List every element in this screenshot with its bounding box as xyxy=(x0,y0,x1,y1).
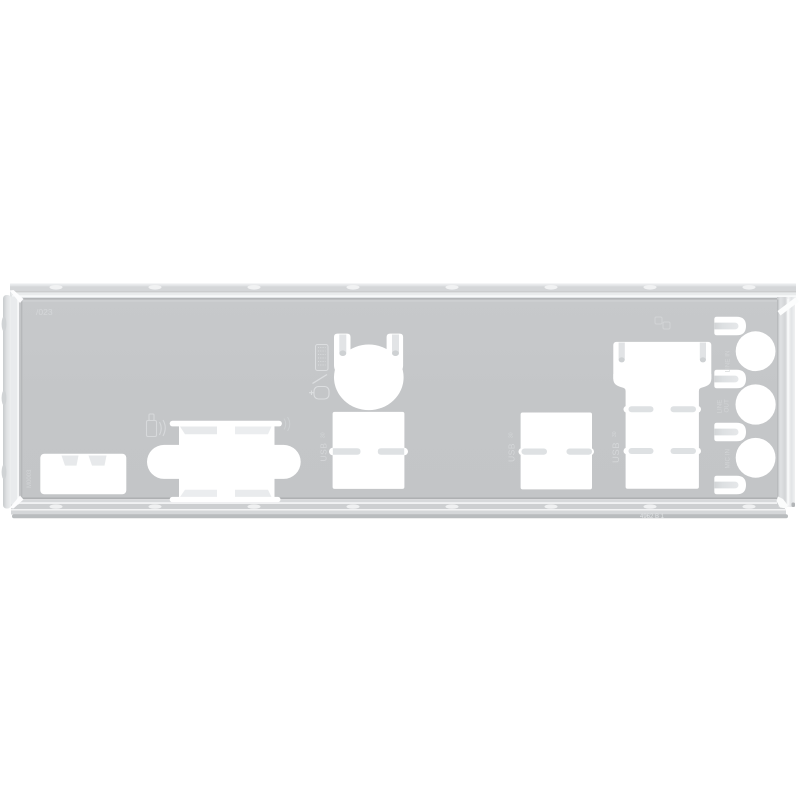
svg-text:M0003: M0003 xyxy=(27,469,33,488)
svg-text:4962 B 1: 4962 B 1 xyxy=(640,514,665,520)
svg-text:/023: /023 xyxy=(36,307,53,317)
svg-text:USB: USB xyxy=(319,443,329,462)
svg-text:OUT: OUT xyxy=(724,399,731,412)
svg-text:30: 30 xyxy=(321,432,327,438)
svg-text:LINE IN: LINE IN xyxy=(725,350,732,372)
svg-text:USB: USB xyxy=(611,442,622,463)
svg-text:30: 30 xyxy=(612,431,618,437)
svg-text:MIC IN: MIC IN xyxy=(725,448,732,468)
svg-text:LINE: LINE xyxy=(717,400,724,414)
svg-text:30: 30 xyxy=(509,432,515,438)
svg-text:USB: USB xyxy=(507,443,517,462)
